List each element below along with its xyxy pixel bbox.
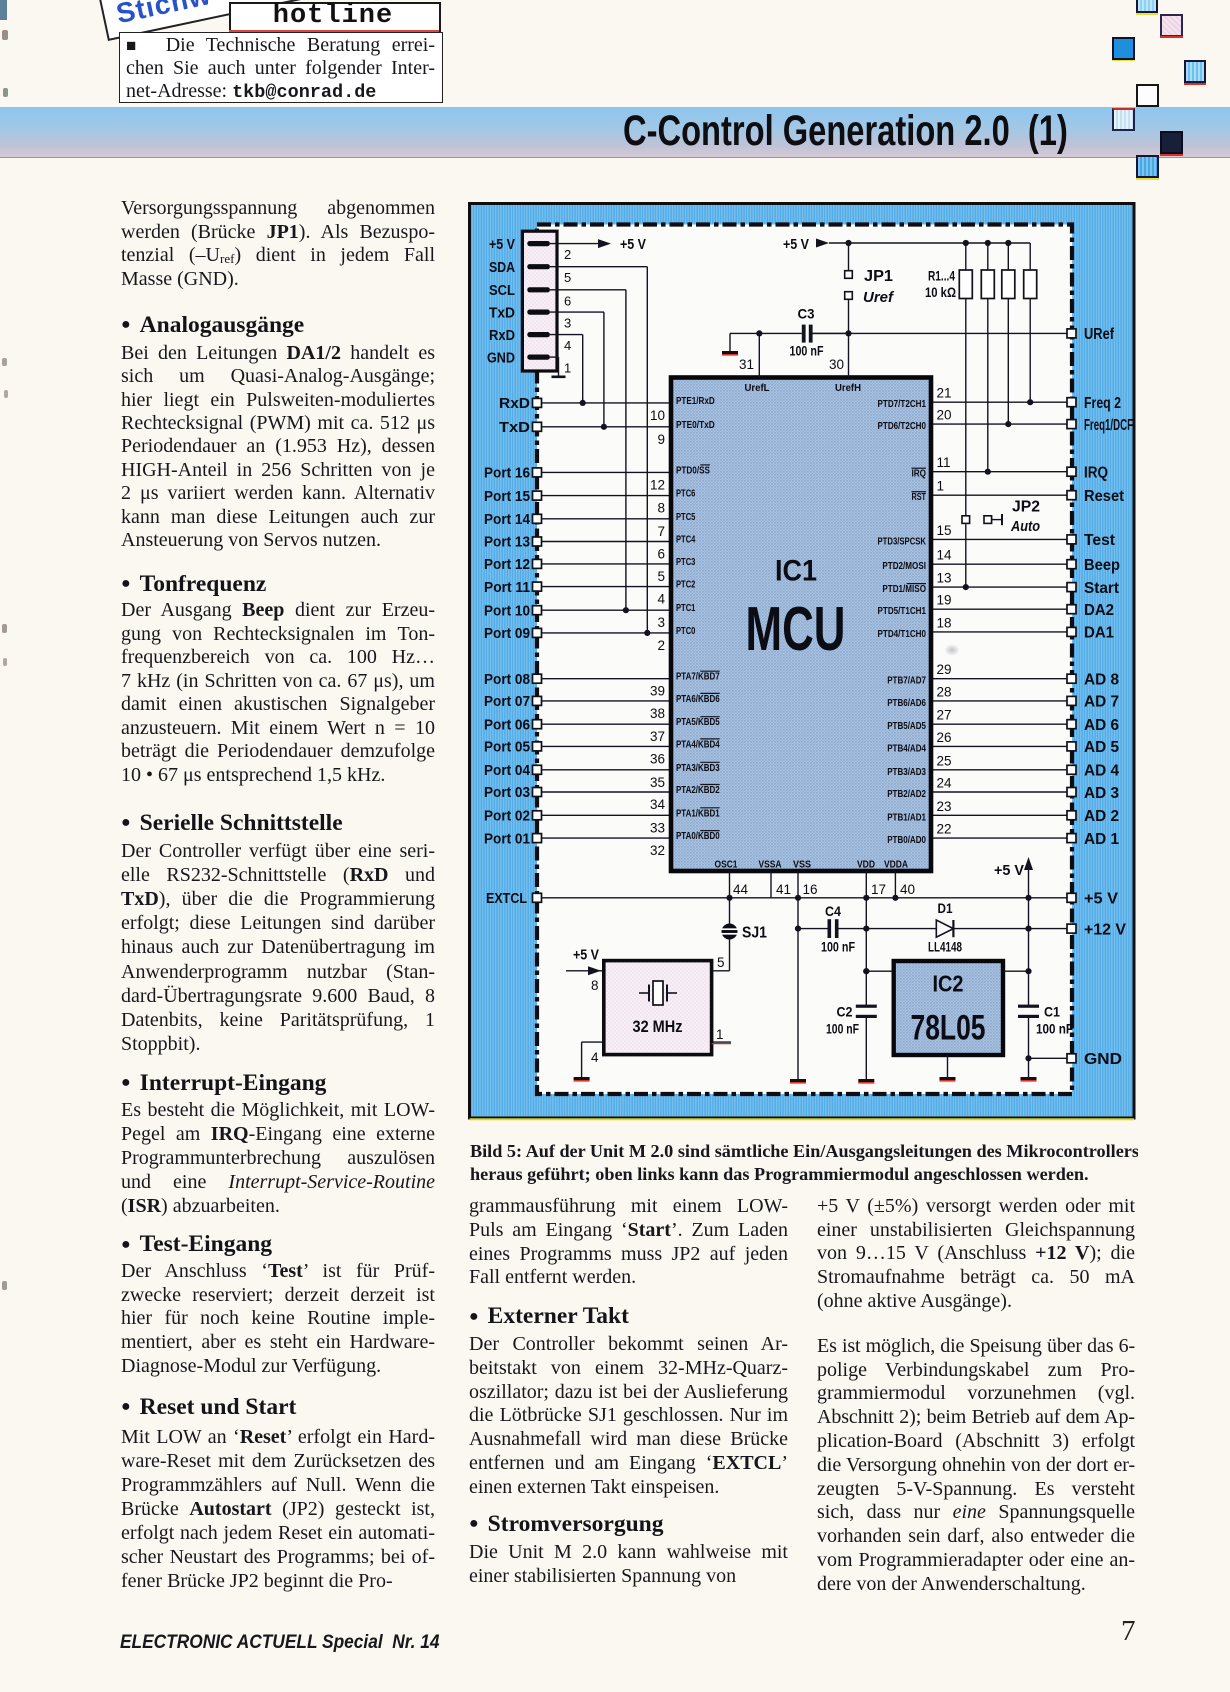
svg-text:PTC5: PTC5: [676, 511, 696, 523]
svg-text:D1: D1: [938, 901, 953, 916]
svg-text:41: 41: [776, 882, 791, 897]
svg-text:RxD: RxD: [489, 328, 515, 344]
svg-text:PTB3/AD3: PTB3/AD3: [887, 766, 926, 778]
svg-text:Test: Test: [1084, 532, 1116, 549]
svg-text:40: 40: [900, 882, 915, 897]
svg-text:PTB2/AD2: PTB2/AD2: [887, 788, 926, 800]
svg-text:24: 24: [937, 776, 953, 791]
svg-text:Port 06: Port 06: [484, 717, 530, 733]
svg-text:SJ1: SJ1: [742, 925, 767, 942]
svg-text:44: 44: [733, 882, 749, 897]
svg-text:PTB5/AD5: PTB5/AD5: [887, 720, 926, 732]
svg-text:27: 27: [937, 708, 952, 723]
svg-text:PTA2/KBD2: PTA2/KBD2: [676, 784, 720, 796]
svg-text:25: 25: [937, 753, 952, 768]
svg-text:IRQ: IRQ: [1084, 465, 1108, 482]
svg-text:38: 38: [650, 706, 665, 721]
svg-text:32: 32: [650, 843, 665, 858]
svg-text:8: 8: [657, 501, 665, 516]
svg-text:1: 1: [564, 361, 571, 376]
svg-text:VDDA: VDDA: [884, 859, 908, 871]
svg-text:13: 13: [937, 571, 952, 586]
svg-text:4: 4: [657, 592, 665, 607]
svg-text:PTA4/KBD4: PTA4/KBD4: [676, 738, 720, 750]
svg-text:19: 19: [937, 593, 952, 608]
svg-text:Freq 2: Freq 2: [1084, 395, 1121, 412]
svg-text:IC2: IC2: [933, 971, 964, 997]
svg-text:100 nF: 100 nF: [1036, 1021, 1073, 1037]
svg-text:33: 33: [650, 820, 665, 835]
svg-text:Port 08: Port 08: [484, 672, 530, 688]
svg-text:1: 1: [937, 479, 945, 494]
svg-text:5: 5: [564, 270, 571, 285]
svg-text:Port 04: Port 04: [484, 763, 530, 779]
svg-text:9: 9: [657, 432, 665, 447]
svg-text:JP1: JP1: [864, 268, 893, 285]
svg-text:AD 5: AD 5: [1084, 739, 1119, 756]
svg-text:DA1: DA1: [1084, 625, 1114, 642]
svg-text:39: 39: [650, 684, 665, 699]
svg-text:URef: URef: [1084, 326, 1115, 343]
svg-text:PTE1/RxD: PTE1/RxD: [676, 395, 715, 407]
svg-text:Port 07: Port 07: [484, 694, 530, 710]
svg-text:UrefH: UrefH: [835, 382, 861, 394]
svg-text:SDA: SDA: [489, 260, 515, 276]
svg-text:Port 12: Port 12: [484, 557, 530, 573]
svg-text:Reset: Reset: [1084, 488, 1125, 505]
svg-text:PTD6/T2CH0: PTD6/T2CH0: [878, 420, 927, 432]
svg-text:10: 10: [650, 408, 665, 423]
svg-text:AD 2: AD 2: [1084, 808, 1119, 825]
svg-text:GND: GND: [1084, 1051, 1122, 1068]
svg-text:Port 05: Port 05: [484, 740, 530, 756]
svg-text:100 nF: 100 nF: [790, 343, 824, 359]
svg-text:Freq1/DCF: Freq1/DCF: [1084, 417, 1133, 434]
svg-text:Start: Start: [1084, 580, 1120, 597]
svg-text:22: 22: [937, 822, 952, 837]
svg-text:PTA7/KBD7: PTA7/KBD7: [676, 671, 720, 683]
svg-text:Uref: Uref: [863, 289, 895, 306]
svg-text:26: 26: [937, 730, 952, 745]
svg-text:Beep: Beep: [1084, 557, 1120, 574]
svg-text:LL4148: LL4148: [928, 940, 962, 955]
svg-text:2: 2: [657, 638, 665, 653]
svg-text:3: 3: [657, 615, 665, 630]
svg-text:4: 4: [564, 338, 571, 353]
svg-text:Port 16: Port 16: [484, 466, 530, 482]
svg-text:37: 37: [650, 729, 665, 744]
svg-text:Port 13: Port 13: [484, 535, 530, 551]
svg-text:12: 12: [650, 477, 665, 492]
svg-text:PTC2: PTC2: [676, 579, 696, 591]
svg-text:18: 18: [937, 615, 952, 630]
svg-text:PTC6: PTC6: [676, 488, 696, 500]
svg-text:VSSA: VSSA: [759, 859, 782, 871]
svg-text:RxD: RxD: [499, 396, 530, 412]
svg-text:30: 30: [829, 357, 844, 372]
svg-text:PTC0: PTC0: [676, 625, 696, 637]
svg-text:Port 14: Port 14: [484, 512, 530, 528]
svg-text:C1: C1: [1044, 1005, 1060, 1020]
svg-text:PTA6/KBD6: PTA6/KBD6: [676, 693, 720, 705]
svg-text:AD 6: AD 6: [1084, 717, 1119, 734]
svg-text:OSC1: OSC1: [715, 859, 738, 871]
svg-text:+5 V: +5 V: [994, 863, 1024, 879]
svg-text:PTD1/MISO: PTD1/MISO: [882, 583, 926, 595]
svg-text:Port 01: Port 01: [484, 831, 530, 847]
svg-text:PTB7/AD7: PTB7/AD7: [887, 675, 926, 687]
svg-text:21: 21: [937, 386, 952, 401]
svg-text:AD 3: AD 3: [1084, 785, 1119, 802]
svg-text:PTD4/T1CH0: PTD4/T1CH0: [878, 628, 927, 640]
svg-text:PTC4: PTC4: [676, 534, 696, 546]
svg-text:C2: C2: [837, 1005, 853, 1020]
svg-text:5: 5: [717, 955, 725, 970]
svg-text:IC1: IC1: [775, 555, 817, 588]
svg-text:+5 V: +5 V: [1084, 891, 1118, 908]
svg-text:AD 4: AD 4: [1084, 763, 1119, 780]
svg-text:PTD0/SS: PTD0/SS: [676, 464, 710, 476]
svg-text:SCL: SCL: [489, 283, 515, 299]
svg-text:5: 5: [657, 569, 665, 584]
svg-text:29: 29: [937, 662, 952, 677]
svg-text:32 MHz: 32 MHz: [633, 1017, 683, 1036]
svg-text:100 nF: 100 nF: [821, 939, 855, 955]
svg-text:VSS: VSS: [793, 859, 811, 871]
svg-text:2: 2: [564, 247, 571, 262]
svg-text:EXTCL: EXTCL: [486, 891, 527, 907]
svg-text:Auto: Auto: [1010, 518, 1040, 535]
svg-text:8: 8: [591, 978, 599, 993]
svg-text:PTE0/TxD: PTE0/TxD: [676, 419, 715, 431]
svg-text:31: 31: [739, 357, 754, 372]
svg-text:PTD7/T2CH1: PTD7/T2CH1: [878, 398, 927, 410]
svg-text:+5 V: +5 V: [783, 237, 809, 253]
svg-text:28: 28: [937, 684, 952, 699]
svg-text:PTA0/KBD0: PTA0/KBD0: [676, 830, 720, 842]
svg-text:10 kΩ: 10 kΩ: [925, 284, 956, 300]
svg-text:AD 8: AD 8: [1084, 672, 1119, 689]
svg-text:RST: RST: [911, 491, 926, 503]
svg-text:100 nF: 100 nF: [826, 1021, 859, 1037]
svg-text:PTB4/AD4: PTB4/AD4: [887, 742, 926, 754]
svg-text:AD 1: AD 1: [1084, 831, 1119, 848]
svg-text:6: 6: [657, 547, 665, 562]
svg-text:+5 V: +5 V: [573, 948, 599, 964]
svg-text:7: 7: [657, 524, 665, 539]
svg-text:15: 15: [937, 523, 952, 538]
svg-text:C4: C4: [825, 904, 841, 919]
svg-text:PTC3: PTC3: [676, 556, 696, 568]
svg-text:R1...4: R1...4: [928, 268, 955, 284]
svg-text:PTB6/AD6: PTB6/AD6: [887, 697, 926, 709]
svg-text:PTD3/SPCSK: PTD3/SPCSK: [878, 535, 927, 547]
svg-text:IRQ: IRQ: [911, 468, 926, 480]
svg-text:MCU: MCU: [746, 595, 846, 664]
svg-text:PTC1: PTC1: [676, 602, 696, 614]
svg-text:35: 35: [650, 775, 665, 790]
svg-text:4: 4: [591, 1050, 599, 1065]
svg-text:36: 36: [650, 751, 665, 766]
svg-text:Port 09: Port 09: [484, 626, 530, 642]
svg-text:20: 20: [937, 408, 952, 423]
svg-text:Port 03: Port 03: [484, 785, 530, 801]
svg-text:+5 V: +5 V: [620, 237, 646, 253]
svg-text:PTA1/KBD1: PTA1/KBD1: [676, 807, 720, 819]
svg-text:Port 02: Port 02: [484, 809, 530, 825]
svg-text:17: 17: [871, 882, 886, 897]
svg-text:Port 10: Port 10: [484, 603, 530, 619]
svg-text:23: 23: [937, 799, 952, 814]
svg-text:Port 15: Port 15: [484, 489, 530, 505]
svg-text:PTD5/T1CH1: PTD5/T1CH1: [878, 605, 927, 617]
svg-text:PTD2/MOSI: PTD2/MOSI: [882, 560, 926, 572]
svg-text:PTB1/AD1: PTB1/AD1: [887, 811, 926, 823]
svg-text:VDD: VDD: [857, 859, 875, 871]
svg-text:78L05: 78L05: [911, 1009, 986, 1048]
svg-text:1: 1: [716, 1027, 724, 1042]
svg-text:UrefL: UrefL: [745, 382, 771, 394]
svg-text:JP2: JP2: [1012, 499, 1040, 516]
svg-text:3: 3: [564, 316, 571, 331]
svg-text:AD 7: AD 7: [1084, 694, 1119, 711]
svg-text:PTA5/KBD5: PTA5/KBD5: [676, 716, 720, 728]
svg-text:PTA3/KBD3: PTA3/KBD3: [676, 762, 720, 774]
svg-text:GND: GND: [487, 350, 515, 366]
svg-text:14: 14: [937, 548, 953, 563]
svg-text:6: 6: [564, 293, 571, 308]
svg-text:TxD: TxD: [499, 420, 530, 436]
svg-text:Port 11: Port 11: [484, 580, 530, 596]
svg-text:11: 11: [937, 455, 951, 470]
svg-text:34: 34: [650, 797, 666, 812]
svg-text:DA2: DA2: [1084, 602, 1114, 619]
svg-text:C3: C3: [798, 307, 815, 322]
svg-text:PTB0/AD0: PTB0/AD0: [887, 834, 926, 846]
svg-text:+5 V: +5 V: [489, 237, 515, 253]
svg-text:TxD: TxD: [489, 305, 515, 321]
svg-text:+12 V: +12 V: [1084, 921, 1126, 938]
svg-text:16: 16: [803, 882, 818, 897]
